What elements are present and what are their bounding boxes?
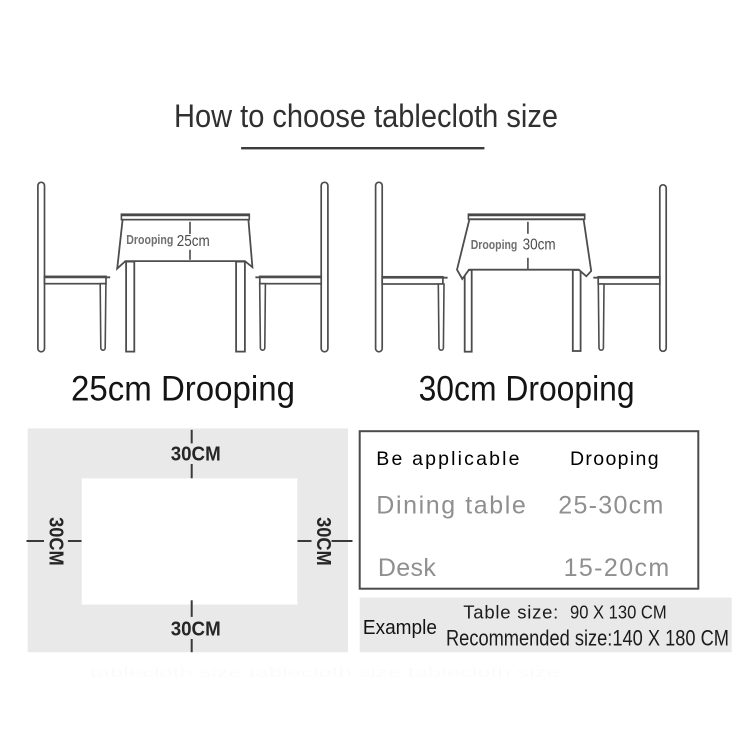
svg-text:25cm: 25cm [177, 233, 210, 250]
svg-text:Be applicable: Be applicable [376, 448, 519, 470]
svg-text:Desk: Desk [378, 554, 437, 582]
svg-text:Drooping: Drooping [126, 232, 173, 247]
svg-text:90 X 130 CM: 90 X 130 CM [570, 602, 667, 623]
svg-text:Drooping: Drooping [570, 448, 659, 470]
svg-text:25-30cm: 25-30cm [558, 492, 663, 520]
svg-text:Drooping: Drooping [471, 237, 518, 252]
svg-text:30CM: 30CM [312, 517, 334, 566]
svg-text:How to choose tablecloth size: How to choose tablecloth size [174, 98, 558, 134]
svg-text:30CM: 30CM [171, 619, 221, 641]
svg-text:30CM: 30CM [171, 443, 221, 465]
svg-text:Recommended size:140 X 180 CM: Recommended size:140 X 180 CM [446, 625, 729, 650]
svg-text:Example: Example [363, 617, 437, 639]
svg-text:tablecloth size tablecloth siz: tablecloth size tablecloth size tableclo… [90, 664, 560, 680]
svg-text:30cm: 30cm [523, 237, 556, 254]
svg-text:Table size:: Table size: [463, 601, 558, 622]
svg-text:30cm Drooping: 30cm Drooping [419, 369, 635, 408]
svg-text:15-20cm: 15-20cm [564, 554, 670, 582]
svg-text:30CM: 30CM [44, 517, 66, 566]
svg-text:25cm Drooping: 25cm Drooping [71, 369, 295, 408]
